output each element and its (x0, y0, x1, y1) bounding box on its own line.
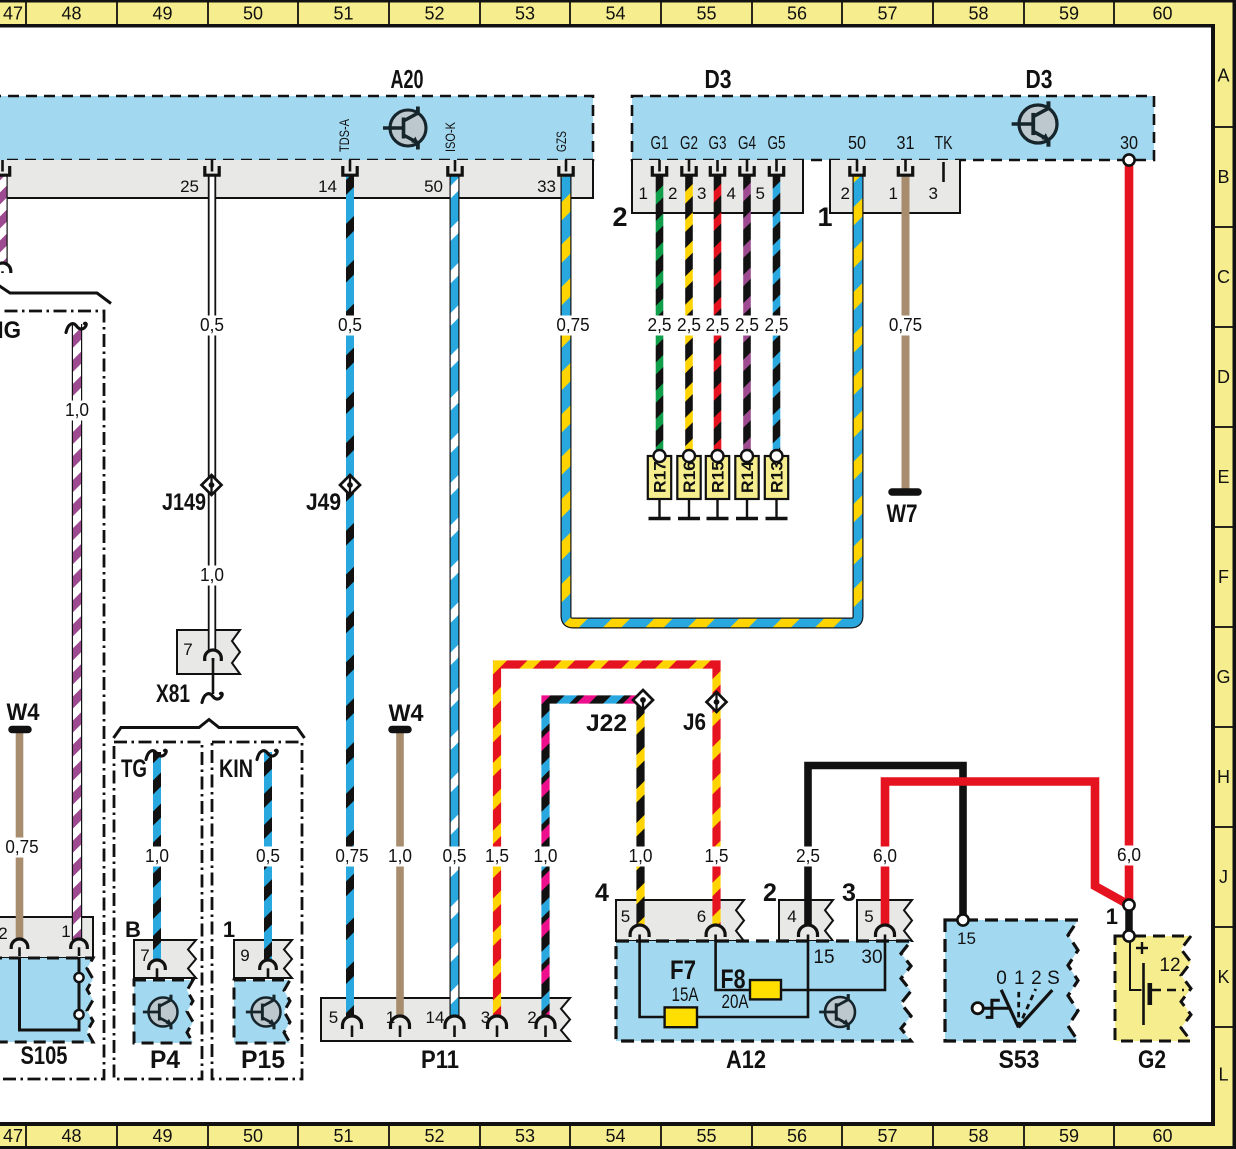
svg-text:R15: R15 (710, 461, 728, 493)
svg-text:1: 1 (61, 922, 70, 941)
svg-text:15: 15 (957, 929, 976, 948)
svg-text:F: F (1218, 567, 1229, 587)
svg-text:G2: G2 (680, 132, 698, 153)
svg-text:4: 4 (787, 907, 796, 926)
svg-text:2,5: 2,5 (648, 314, 672, 335)
svg-text:MG: MG (0, 317, 21, 344)
svg-text:55: 55 (696, 1126, 716, 1146)
svg-text:L: L (1218, 1065, 1228, 1085)
svg-text:57: 57 (877, 4, 897, 24)
svg-text:56: 56 (787, 1126, 807, 1146)
svg-text:A12: A12 (726, 1046, 766, 1074)
svg-text:J149: J149 (162, 489, 206, 516)
svg-text:2,5: 2,5 (735, 314, 759, 335)
svg-text:G1: G1 (651, 132, 669, 153)
svg-text:P11: P11 (421, 1046, 459, 1074)
svg-text:47: 47 (3, 1126, 23, 1146)
svg-text:2: 2 (763, 879, 777, 907)
svg-text:2: 2 (668, 184, 677, 203)
svg-text:58: 58 (968, 4, 988, 24)
svg-text:6,0: 6,0 (1117, 844, 1141, 865)
svg-text:48: 48 (61, 1126, 81, 1146)
svg-text:4: 4 (595, 879, 609, 907)
svg-text:S53: S53 (999, 1046, 1040, 1074)
svg-text:55: 55 (696, 4, 716, 24)
svg-text:59: 59 (1059, 1126, 1079, 1146)
svg-text:S: S (1047, 968, 1060, 989)
svg-text:2: 2 (1031, 968, 1042, 989)
svg-text:1,5: 1,5 (705, 845, 729, 866)
svg-text:49: 49 (152, 1126, 172, 1146)
svg-text:W7: W7 (887, 500, 918, 528)
svg-text:1: 1 (889, 184, 898, 203)
svg-text:52: 52 (424, 4, 444, 24)
svg-text:59: 59 (1059, 4, 1079, 24)
svg-text:2: 2 (841, 184, 850, 203)
svg-text:50: 50 (424, 177, 443, 196)
svg-text:2,5: 2,5 (765, 314, 789, 335)
svg-text:W4: W4 (389, 700, 425, 727)
svg-text:0,5: 0,5 (443, 845, 467, 866)
svg-text:48: 48 (61, 4, 81, 24)
svg-text:1,0: 1,0 (629, 845, 653, 866)
svg-text:47: 47 (3, 4, 23, 24)
svg-text:R17: R17 (652, 461, 670, 493)
svg-text:B: B (125, 917, 141, 942)
svg-text:B: B (1217, 167, 1229, 187)
svg-text:14: 14 (318, 177, 337, 196)
svg-text:2: 2 (612, 202, 627, 232)
svg-text:X81: X81 (156, 680, 190, 708)
svg-text:R14: R14 (739, 460, 757, 493)
svg-text:33: 33 (537, 177, 556, 196)
svg-text:1,5: 1,5 (485, 845, 509, 866)
svg-text:G3: G3 (709, 132, 727, 153)
svg-text:J: J (1219, 867, 1228, 887)
svg-text:54: 54 (605, 4, 625, 24)
svg-text:J6: J6 (683, 709, 706, 736)
svg-text:25: 25 (180, 177, 199, 196)
svg-text:G: G (1216, 667, 1230, 687)
svg-text:G5: G5 (768, 132, 786, 153)
svg-text:P15: P15 (241, 1046, 285, 1074)
svg-text:1: 1 (1106, 904, 1118, 929)
svg-text:D3: D3 (1026, 64, 1053, 94)
svg-text:7: 7 (183, 640, 192, 659)
svg-text:53: 53 (515, 1126, 535, 1146)
svg-text:F7: F7 (670, 955, 696, 985)
svg-text:7: 7 (140, 946, 149, 965)
svg-text:56: 56 (787, 4, 807, 24)
svg-text:5: 5 (864, 907, 873, 926)
svg-text:0,5: 0,5 (256, 845, 280, 866)
svg-text:54: 54 (605, 1126, 625, 1146)
svg-text:2,5: 2,5 (677, 314, 701, 335)
svg-text:5: 5 (329, 1008, 338, 1027)
svg-text:53: 53 (515, 4, 535, 24)
svg-text:G4: G4 (738, 132, 756, 153)
svg-text:G2: G2 (1138, 1046, 1166, 1074)
svg-text:F8: F8 (721, 964, 746, 994)
svg-text:0,5: 0,5 (338, 314, 362, 335)
svg-text:GZS: GZS (554, 131, 569, 152)
svg-text:1,0: 1,0 (534, 845, 558, 866)
svg-text:A: A (1217, 66, 1229, 86)
svg-text:1,0: 1,0 (388, 845, 412, 866)
svg-text:1: 1 (1014, 968, 1025, 989)
svg-text:60: 60 (1152, 1126, 1172, 1146)
svg-text:57: 57 (877, 1126, 897, 1146)
svg-text:1,0: 1,0 (65, 399, 89, 420)
svg-text:0,75: 0,75 (556, 314, 589, 335)
svg-text:D: D (1217, 367, 1230, 387)
svg-text:ISO-K: ISO-K (443, 122, 458, 152)
svg-text:S105: S105 (21, 1042, 68, 1070)
svg-text:W4: W4 (7, 699, 41, 726)
svg-text:60: 60 (1152, 4, 1172, 24)
svg-text:0,75: 0,75 (889, 314, 922, 335)
svg-text:15: 15 (813, 947, 834, 968)
svg-text:1: 1 (817, 202, 832, 232)
svg-text:1: 1 (223, 917, 235, 942)
svg-text:51: 51 (333, 4, 353, 24)
svg-text:J22: J22 (586, 710, 627, 737)
svg-text:1,0: 1,0 (145, 845, 169, 866)
svg-text:TK: TK (935, 132, 954, 153)
svg-text:0,75: 0,75 (335, 845, 368, 866)
svg-text:20A: 20A (722, 992, 749, 1013)
svg-text:E: E (1217, 467, 1229, 487)
svg-text:K: K (1217, 967, 1229, 987)
svg-text:6: 6 (697, 907, 706, 926)
svg-text:14: 14 (426, 1008, 445, 1027)
svg-text:4: 4 (727, 184, 736, 203)
svg-text:51: 51 (333, 1126, 353, 1146)
svg-text:50: 50 (848, 132, 866, 153)
svg-text:12: 12 (1159, 955, 1180, 976)
svg-text:0: 0 (996, 968, 1007, 989)
svg-text:6,0: 6,0 (873, 845, 897, 866)
svg-text:1: 1 (639, 184, 648, 203)
svg-text:3: 3 (929, 184, 938, 203)
svg-text:H: H (1217, 767, 1230, 787)
svg-text:0,5: 0,5 (200, 314, 224, 335)
svg-text:58: 58 (968, 1126, 988, 1146)
svg-text:D3: D3 (705, 64, 732, 94)
svg-text:TDS-A: TDS-A (337, 119, 352, 152)
svg-text:KIN: KIN (219, 755, 253, 783)
svg-text:2,5: 2,5 (706, 314, 730, 335)
svg-text:J49: J49 (306, 489, 341, 516)
svg-text:9: 9 (240, 946, 249, 965)
svg-text:50: 50 (243, 4, 263, 24)
svg-text:R13: R13 (769, 461, 787, 493)
svg-text:5: 5 (756, 184, 765, 203)
svg-text:31: 31 (897, 132, 915, 153)
svg-text:A20: A20 (391, 64, 424, 94)
svg-text:P4: P4 (150, 1046, 180, 1074)
svg-text:30: 30 (861, 947, 882, 968)
svg-text:5: 5 (621, 907, 630, 926)
svg-text:2: 2 (0, 924, 8, 943)
svg-text:1,0: 1,0 (200, 564, 224, 585)
svg-text:3: 3 (697, 184, 706, 203)
svg-text:3: 3 (842, 879, 856, 907)
svg-text:C: C (1217, 267, 1230, 287)
svg-text:30: 30 (1120, 132, 1138, 153)
svg-text:TG: TG (121, 755, 147, 783)
svg-text:49: 49 (152, 4, 172, 24)
svg-text:15A: 15A (672, 985, 699, 1006)
svg-text:2,5: 2,5 (796, 845, 820, 866)
svg-text:50: 50 (243, 1126, 263, 1146)
svg-text:52: 52 (424, 1126, 444, 1146)
svg-text:R16: R16 (681, 461, 699, 493)
svg-text:0,75: 0,75 (5, 836, 38, 857)
